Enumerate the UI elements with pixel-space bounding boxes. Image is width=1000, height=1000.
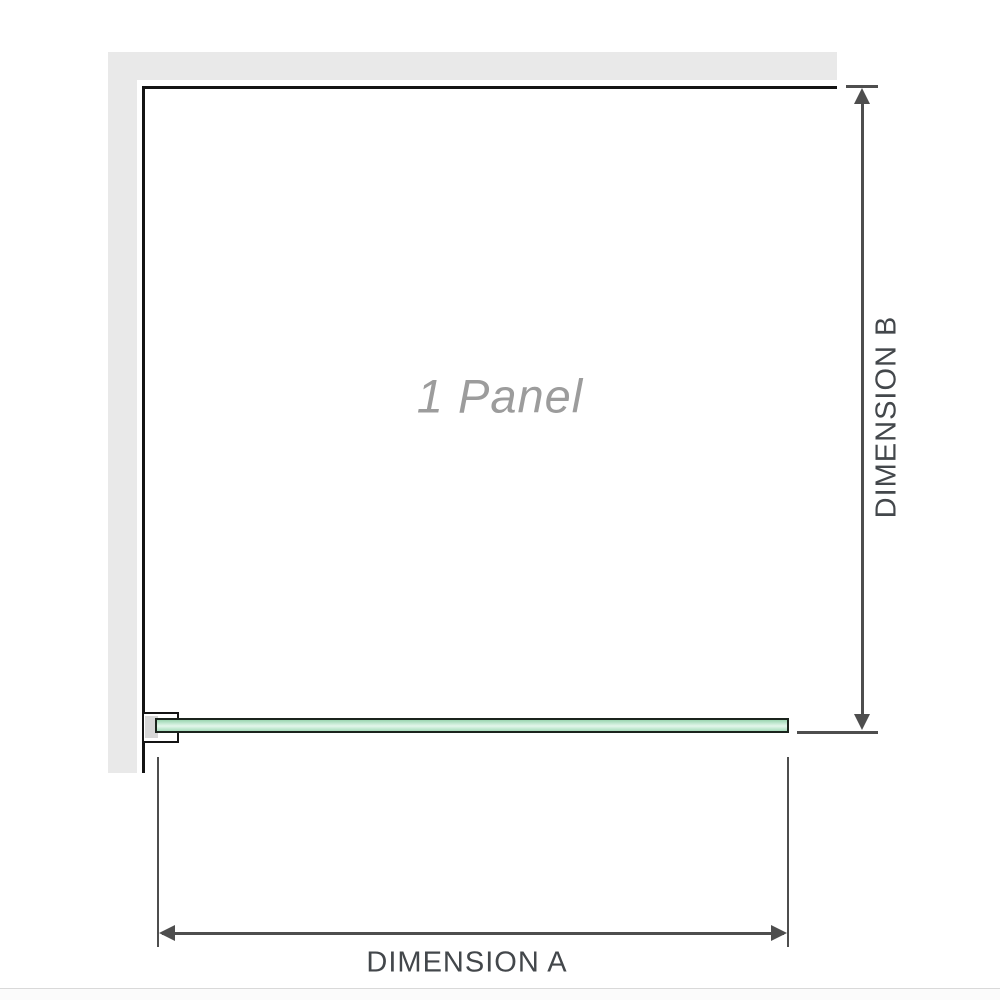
- dimension-b-bottom-tick: [797, 731, 878, 734]
- panel-count-label: 1 Panel: [417, 369, 583, 424]
- glass-panel: [155, 718, 789, 733]
- dimension-a-left-extension: [157, 757, 159, 947]
- wall-left-band: [108, 52, 137, 773]
- footer-strip: [0, 989, 1000, 1000]
- wall-top-band: [108, 52, 837, 80]
- arrow-left-icon: [159, 925, 175, 941]
- arrow-up-icon: [854, 88, 870, 104]
- enclosure-left-border: [142, 86, 145, 773]
- dimension-a-label: DIMENSION A: [366, 947, 567, 980]
- shower-screen-dimension-diagram: 1 Panel DIMENSION B DIMENSION A: [0, 0, 1000, 1000]
- dimension-b-label: DIMENSION B: [871, 316, 904, 519]
- arrow-right-icon: [771, 925, 787, 941]
- dimension-b-line: [861, 92, 864, 724]
- arrow-down-icon: [854, 714, 870, 730]
- dimension-a-right-extension: [787, 757, 789, 947]
- enclosure-top-border: [142, 86, 837, 89]
- dimension-a-line: [162, 932, 784, 935]
